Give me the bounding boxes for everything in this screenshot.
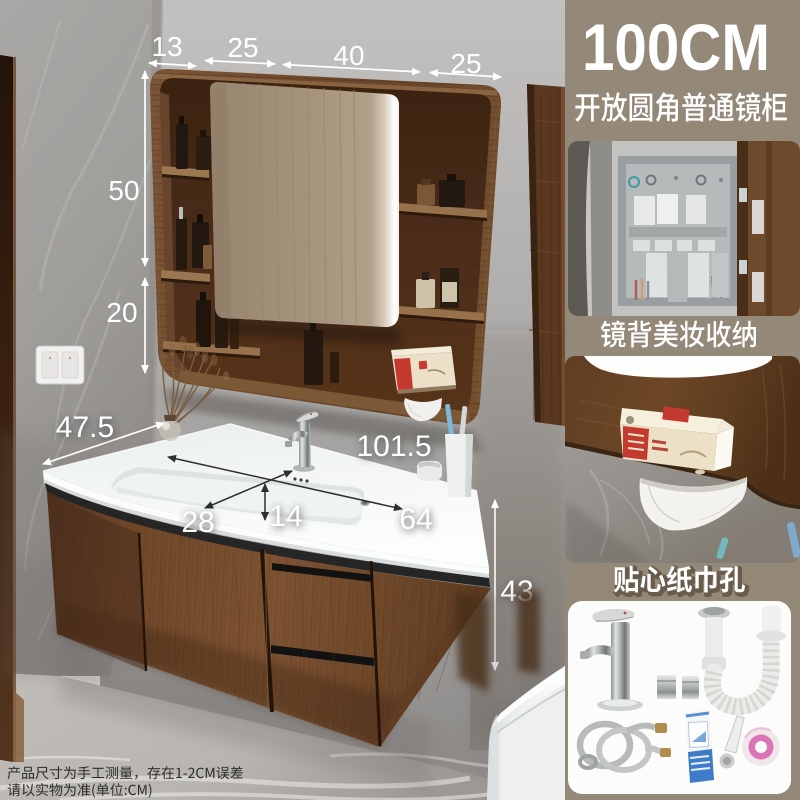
svg-text:20: 20 — [106, 297, 137, 328]
svg-text:28: 28 — [181, 506, 214, 539]
svg-text:47.5: 47.5 — [56, 411, 114, 444]
svg-text:64: 64 — [399, 503, 432, 536]
svg-text:25: 25 — [450, 48, 481, 79]
svg-text:40: 40 — [333, 40, 364, 71]
svg-text:13: 13 — [151, 31, 182, 62]
svg-text:100CM: 100CM — [582, 10, 770, 84]
svg-text:101.5: 101.5 — [356, 430, 431, 463]
svg-text:25: 25 — [227, 32, 258, 63]
svg-text:50: 50 — [108, 175, 139, 206]
svg-text:14: 14 — [269, 500, 302, 533]
